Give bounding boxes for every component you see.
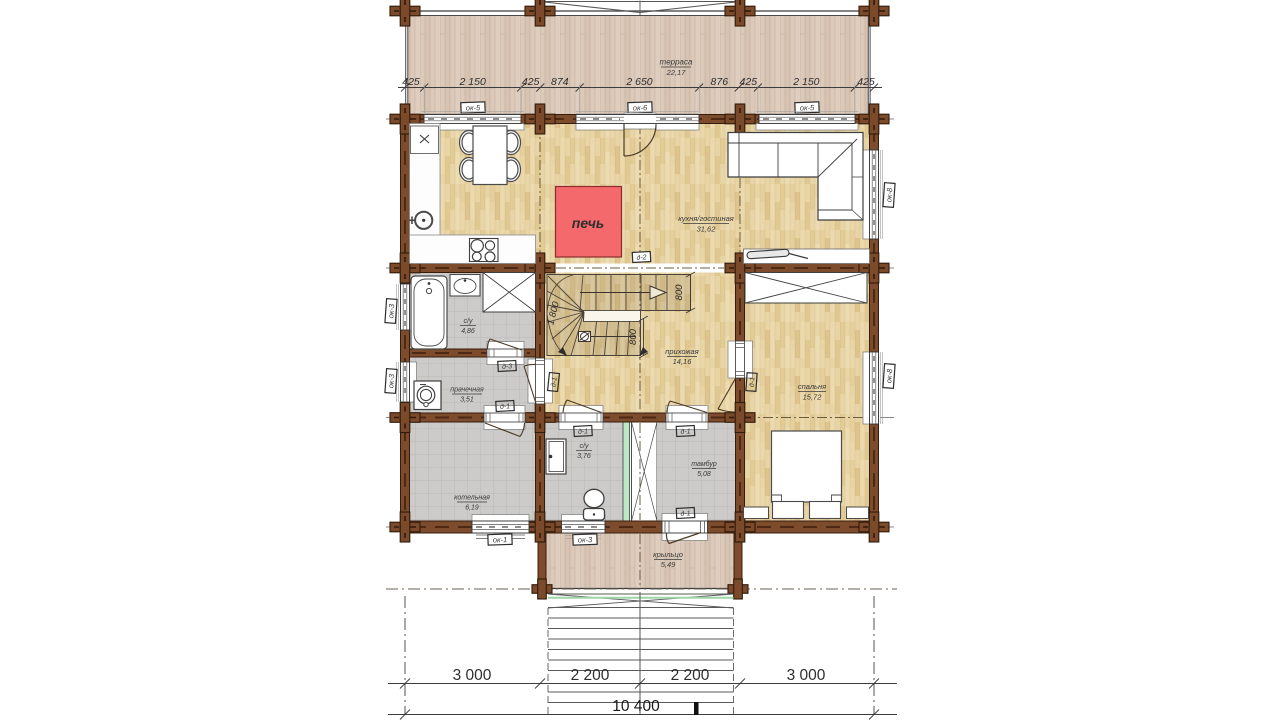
svg-text:15,72: 15,72 — [803, 393, 823, 402]
svg-text:425: 425 — [402, 76, 420, 88]
svg-text:котельная: котельная — [454, 495, 490, 502]
svg-text:4,86: 4,86 — [461, 328, 475, 335]
svg-text:д-3: д-3 — [502, 362, 513, 371]
svg-text:д-1: д-1 — [550, 377, 559, 388]
svg-text:д-1: д-1 — [680, 427, 691, 436]
svg-text:2 150: 2 150 — [792, 76, 819, 88]
svg-text:ок-3: ок-3 — [386, 303, 396, 319]
svg-text:прачечная: прачечная — [450, 387, 484, 394]
svg-text:425: 425 — [857, 76, 875, 88]
svg-text:31,62: 31,62 — [697, 225, 717, 234]
svg-text:терраса: терраса — [660, 58, 693, 67]
svg-text:800: 800 — [628, 328, 639, 345]
svg-text:с/у: с/у — [580, 443, 589, 450]
svg-text:ок-6: ок-6 — [633, 103, 649, 113]
svg-text:тамбур: тамбур — [691, 460, 717, 468]
svg-text:крыльцо: крыльцо — [653, 550, 683, 559]
svg-text:печь: печь — [572, 215, 604, 231]
svg-text:д-2: д-2 — [636, 253, 647, 262]
svg-text:2 200: 2 200 — [571, 667, 610, 684]
svg-text:д-1: д-1 — [500, 402, 511, 411]
svg-text:д-1: д-1 — [578, 427, 589, 436]
svg-text:ок-8: ок-8 — [884, 368, 894, 384]
svg-text:3 000: 3 000 — [787, 667, 826, 684]
svg-text:3,76: 3,76 — [577, 453, 591, 460]
svg-text:425: 425 — [740, 76, 758, 88]
svg-text:2 650: 2 650 — [625, 76, 652, 88]
svg-text:3,51: 3,51 — [460, 397, 474, 404]
svg-text:6,19: 6,19 — [465, 505, 479, 512]
svg-text:5,49: 5,49 — [661, 560, 676, 569]
svg-text:2 200: 2 200 — [671, 667, 710, 684]
svg-text:ок-3: ок-3 — [578, 535, 594, 545]
svg-text:спальня: спальня — [798, 382, 826, 391]
svg-text:ок-3: ок-3 — [386, 373, 396, 389]
svg-text:кухня/гостиная: кухня/гостиная — [678, 214, 734, 223]
svg-text:425: 425 — [522, 76, 540, 88]
svg-text:прихожая: прихожая — [665, 347, 698, 356]
svg-text:14,16: 14,16 — [673, 357, 693, 366]
svg-text:2 150: 2 150 — [459, 76, 486, 88]
svg-text:ок-1: ок-1 — [493, 535, 508, 544]
svg-text:800: 800 — [674, 284, 685, 301]
svg-text:с/у: с/у — [464, 318, 473, 325]
svg-text:ок-5: ок-5 — [466, 103, 482, 113]
svg-text:876: 876 — [711, 76, 729, 88]
svg-text:ок-5: ок-5 — [800, 103, 816, 113]
svg-text:10 400: 10 400 — [612, 698, 660, 715]
svg-text:ок-8: ок-8 — [884, 187, 894, 203]
svg-text:874: 874 — [551, 76, 569, 88]
svg-text:5,08: 5,08 — [697, 471, 711, 478]
svg-text:3 000: 3 000 — [453, 667, 492, 684]
svg-text:22,17: 22,17 — [666, 68, 687, 77]
svg-text:д-1: д-1 — [680, 509, 691, 518]
svg-text:д-1: д-1 — [748, 377, 757, 388]
